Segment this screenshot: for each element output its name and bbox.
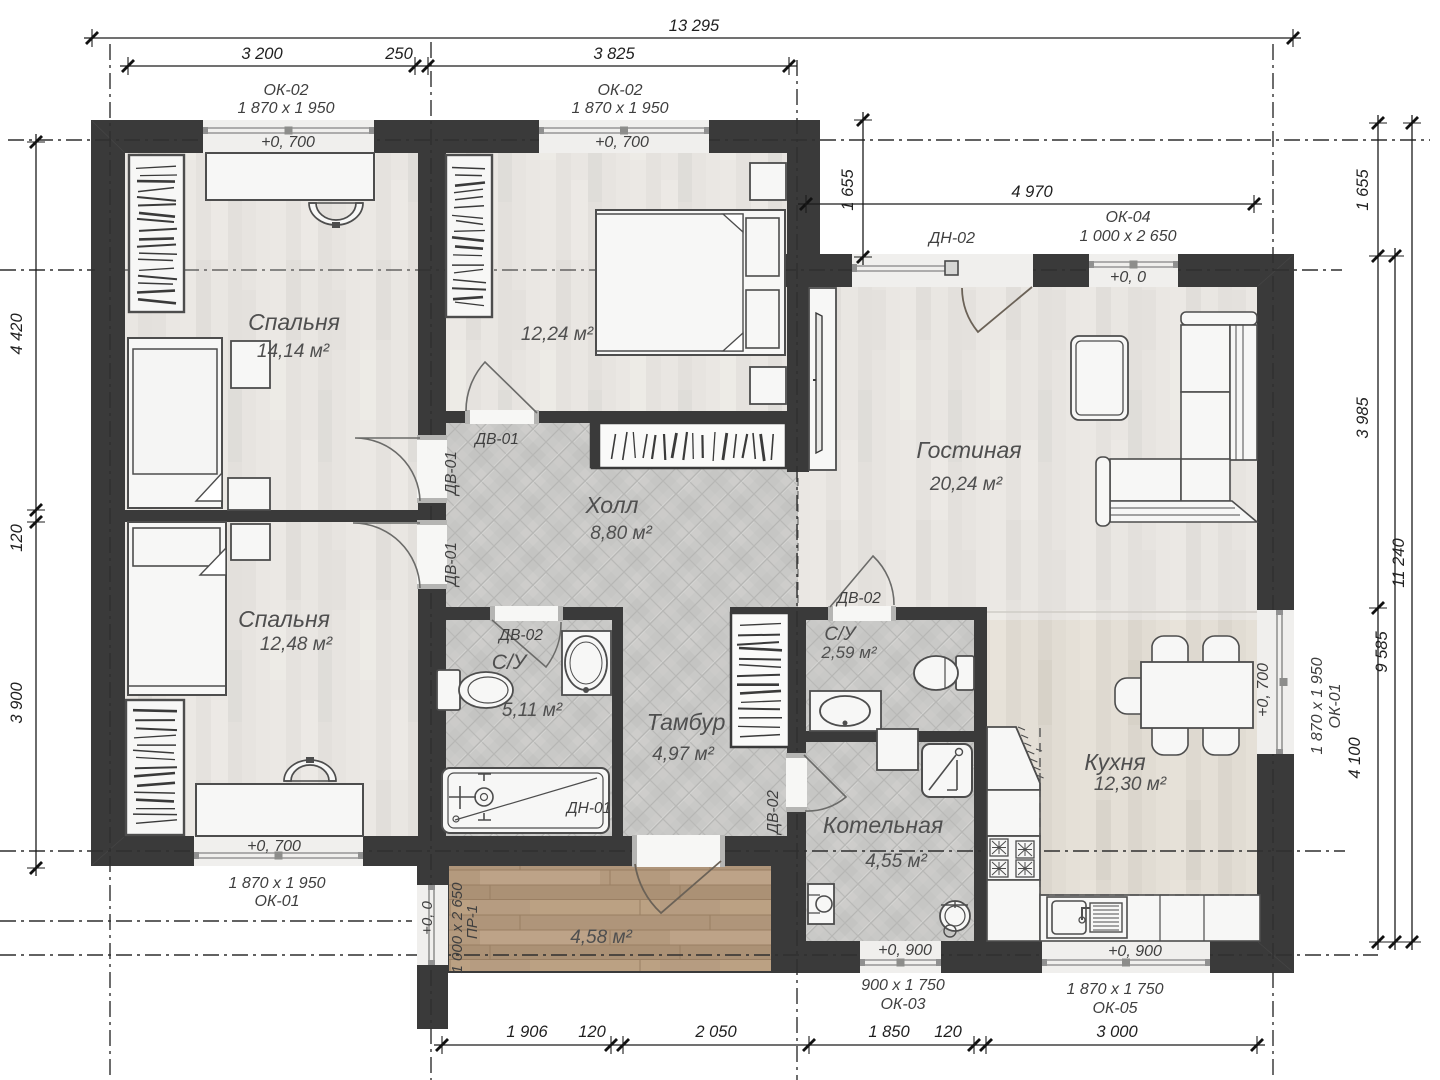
svg-text:Котельная: Котельная — [823, 812, 943, 838]
svg-text:12,48 м²: 12,48 м² — [260, 634, 333, 655]
svg-text:3 825: 3 825 — [593, 45, 635, 63]
svg-text:13 295: 13 295 — [669, 17, 720, 35]
svg-text:1 870 x 1 950: 1 870 x 1 950 — [229, 875, 326, 892]
svg-text:+0, 700: +0, 700 — [261, 134, 315, 151]
svg-text:+0, 900: +0, 900 — [878, 942, 932, 959]
svg-text:14,14 м²: 14,14 м² — [257, 341, 330, 362]
svg-text:+0, 0: +0, 0 — [419, 900, 436, 934]
svg-text:+0, 0: +0, 0 — [1110, 269, 1146, 286]
svg-text:2 050: 2 050 — [694, 1023, 737, 1041]
svg-text:4 100: 4 100 — [1346, 737, 1364, 779]
svg-text:4,58 м²: 4,58 м² — [570, 927, 632, 948]
svg-text:3 985: 3 985 — [1354, 397, 1372, 439]
svg-text:Спальня: Спальня — [248, 309, 340, 335]
svg-text:ДВ-01: ДВ-01 — [443, 542, 460, 588]
svg-text:4,97 м²: 4,97 м² — [652, 744, 714, 765]
svg-text:1 906: 1 906 — [506, 1023, 548, 1041]
svg-text:+0, 900: +0, 900 — [1108, 943, 1162, 960]
svg-text:ОК-04: ОК-04 — [1106, 209, 1151, 226]
svg-text:ДВ-02: ДВ-02 — [835, 590, 881, 607]
svg-text:1 000 x 2 650: 1 000 x 2 650 — [1080, 228, 1177, 245]
svg-text:1 870 x 1 950: 1 870 x 1 950 — [238, 100, 335, 117]
svg-text:20,24 м²: 20,24 м² — [929, 474, 1003, 495]
svg-text:С/У: С/У — [824, 624, 857, 645]
svg-text:+0, 700: +0, 700 — [1255, 663, 1272, 717]
svg-text:+0, 700: +0, 700 — [595, 134, 649, 151]
svg-text:ДН-01: ДН-01 — [565, 800, 612, 817]
svg-text:11 240: 11 240 — [1390, 538, 1408, 588]
svg-text:ОК-05: ОК-05 — [1093, 1000, 1138, 1017]
svg-text:120: 120 — [8, 523, 26, 551]
svg-text:Спальня: Спальня — [238, 606, 330, 632]
svg-text:Тамбур: Тамбур — [647, 709, 726, 735]
svg-text:1 870 x 1 950: 1 870 x 1 950 — [1309, 657, 1326, 754]
svg-text:ОК-03: ОК-03 — [881, 996, 926, 1013]
svg-text:8,80 м²: 8,80 м² — [590, 523, 652, 544]
svg-text:1 850: 1 850 — [868, 1023, 910, 1041]
svg-text:3 200: 3 200 — [241, 45, 283, 63]
svg-text:ДВ-02: ДВ-02 — [497, 627, 543, 644]
svg-text:ДН-02: ДН-02 — [927, 230, 975, 247]
svg-text:900 x 1 750: 900 x 1 750 — [861, 977, 945, 994]
svg-text:ОК-01: ОК-01 — [255, 893, 300, 910]
svg-text:+0, 700: +0, 700 — [247, 838, 301, 855]
svg-text:ДВ-01: ДВ-01 — [443, 451, 460, 497]
svg-text:120: 120 — [578, 1023, 606, 1041]
svg-text:5,11 м²: 5,11 м² — [502, 700, 563, 721]
svg-text:ДВ-01: ДВ-01 — [473, 431, 519, 448]
svg-text:С/У: С/У — [492, 651, 529, 674]
svg-text:Холл: Холл — [584, 492, 638, 518]
svg-text:1 655: 1 655 — [1354, 169, 1372, 211]
svg-text:1 870 x 1 950: 1 870 x 1 950 — [572, 100, 669, 117]
svg-text:ПР-1: ПР-1 — [464, 905, 481, 939]
svg-text:3 000: 3 000 — [1096, 1023, 1138, 1041]
svg-text:Кухня: Кухня — [1084, 749, 1145, 775]
svg-text:4 420: 4 420 — [8, 313, 26, 355]
svg-text:1 655: 1 655 — [839, 169, 857, 211]
svg-text:ОК-02: ОК-02 — [264, 82, 309, 99]
svg-text:Гостиная: Гостиная — [916, 437, 1021, 463]
svg-text:ДВ-02: ДВ-02 — [765, 790, 782, 836]
svg-text:120: 120 — [934, 1023, 962, 1041]
svg-text:12,24 м²: 12,24 м² — [521, 324, 594, 345]
svg-text:12,30 м²: 12,30 м² — [1094, 774, 1167, 795]
svg-text:4,55 м²: 4,55 м² — [865, 851, 927, 872]
svg-text:3 900: 3 900 — [8, 682, 26, 724]
svg-text:250: 250 — [384, 45, 413, 63]
svg-text:9 585: 9 585 — [1373, 631, 1391, 673]
svg-text:1 870 x 1 750: 1 870 x 1 750 — [1067, 981, 1164, 998]
svg-text:ОК-01: ОК-01 — [1327, 684, 1344, 729]
svg-text:2,59 м²: 2,59 м² — [820, 643, 877, 662]
svg-text:4 970: 4 970 — [1011, 183, 1053, 201]
svg-text:ОК-02: ОК-02 — [598, 82, 643, 99]
